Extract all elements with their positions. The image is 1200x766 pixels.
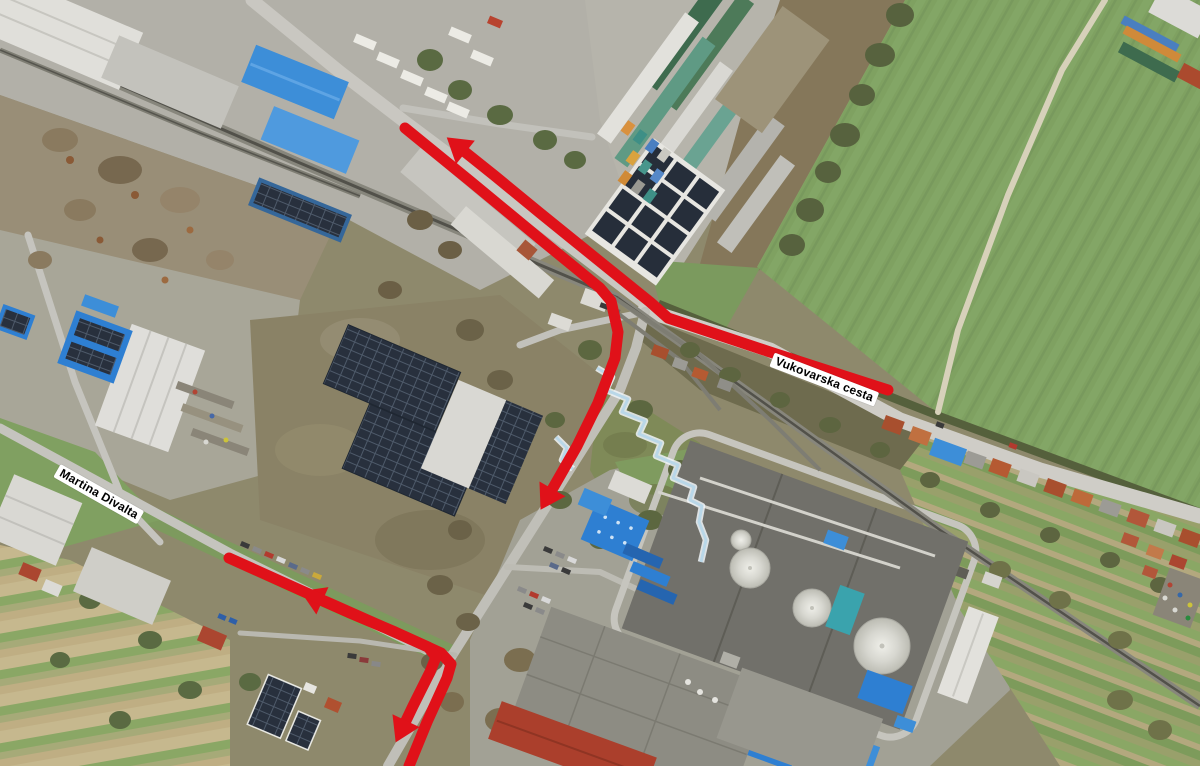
scrub-patch (375, 510, 485, 570)
storage-tank-small (731, 530, 751, 550)
satellite-scene (0, 0, 1200, 766)
aerial-map-screenshot: Vukovarska cesta Martina Divalta (0, 0, 1200, 766)
